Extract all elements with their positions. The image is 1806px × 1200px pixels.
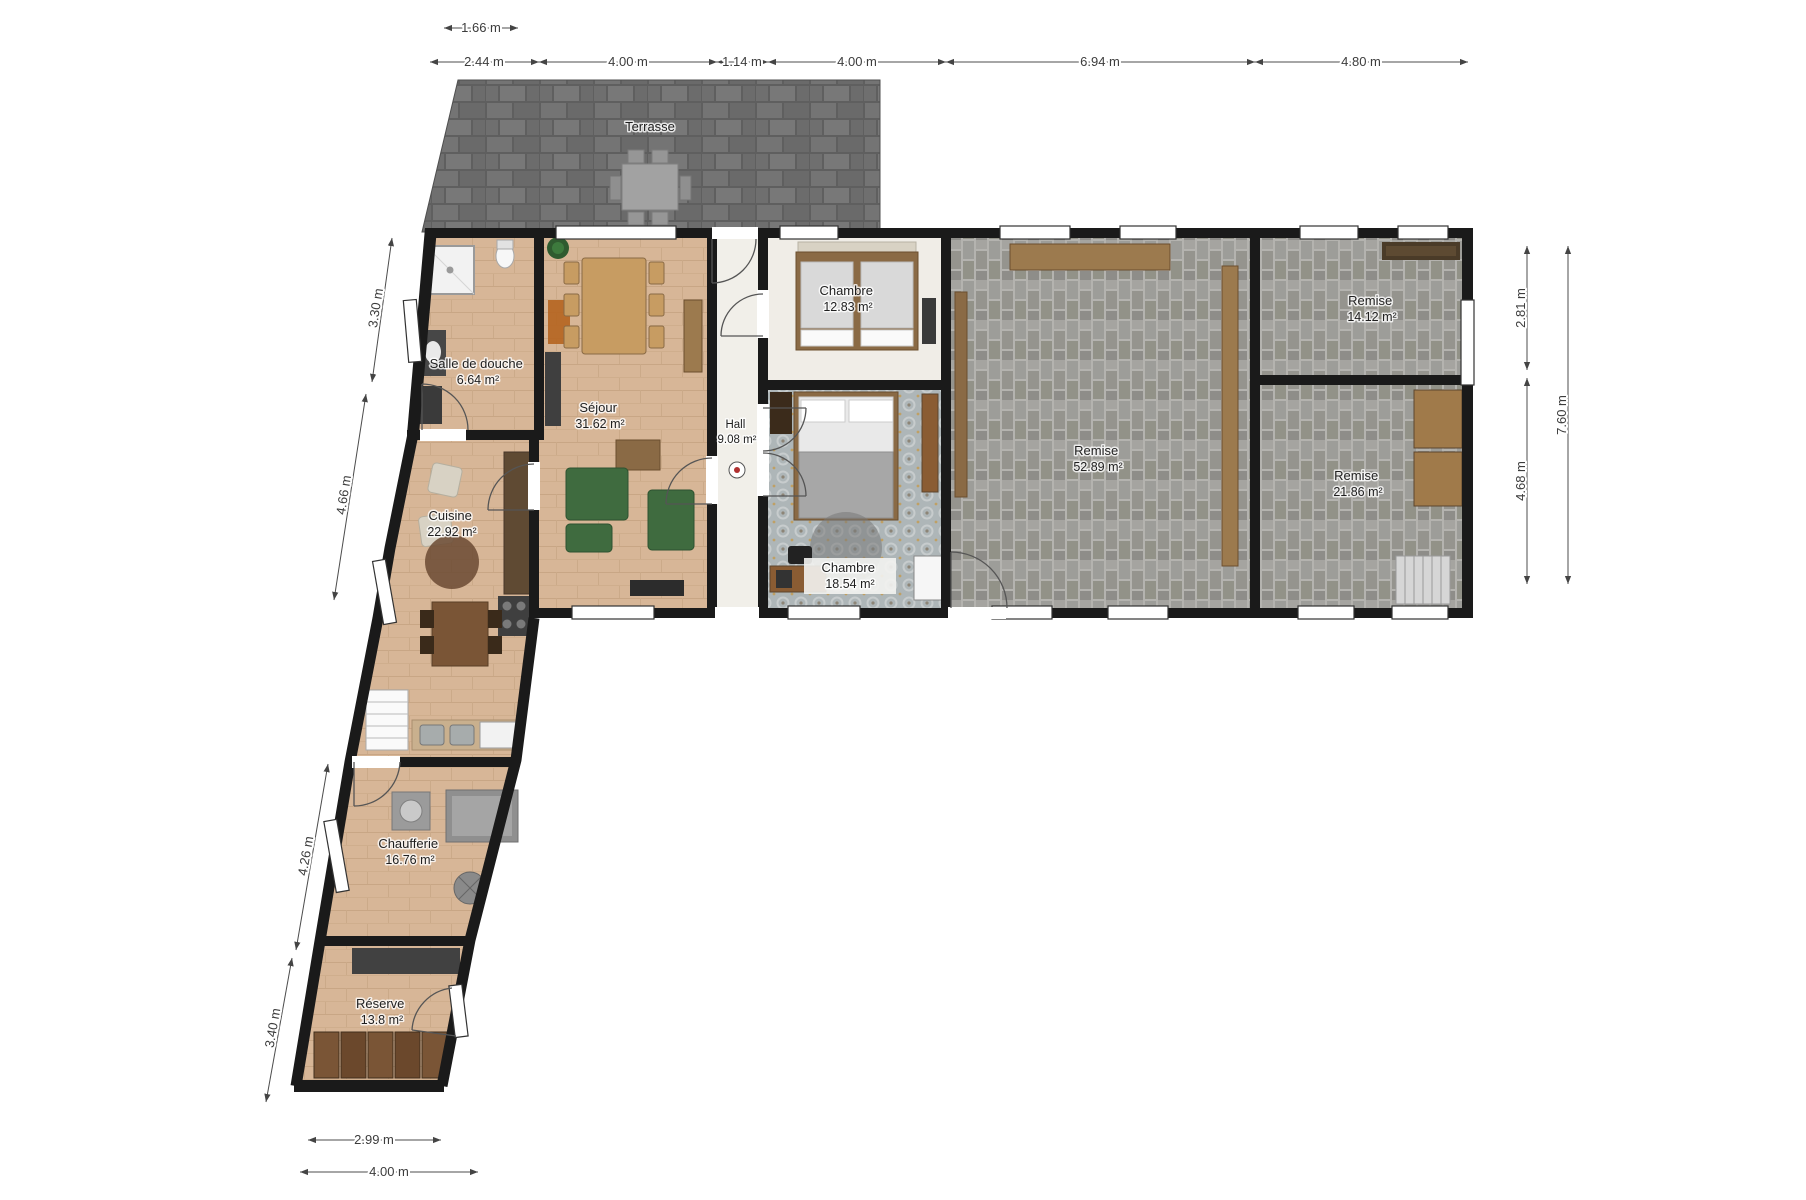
room-name: Cuisine [429,508,472,523]
reserve-shelving [314,1032,447,1078]
dim-right-2: 4.68 m [1513,461,1528,501]
dim-top-1: 2.44 m [464,54,504,69]
room-area: 18.54 m² [825,577,874,591]
dim-left-2: 4.66 m [333,474,354,516]
room-area: 16.76 m² [385,853,434,867]
hall-sensor-icon [729,462,745,478]
room-name: Hall [725,419,745,431]
dim-top-4: 4.00 m [837,54,877,69]
dim-top-3: 1.14 m [722,54,762,69]
room-name: Salle de douche [430,356,523,371]
dim-right-3: 7.60 m [1554,395,1569,435]
room-area: 9.08 m² [718,434,757,446]
room-name: Chaufferie [378,836,438,851]
dim-left-1: 3.30 m [365,287,386,329]
remise-small-shelf [1382,242,1460,260]
dim-top-2: 4.00 m [608,54,648,69]
room-area: 31.62 m² [575,417,624,431]
room-name: Séjour [579,400,617,415]
room-name: Remise [1074,443,1118,458]
room-name: Chambre [819,283,872,298]
cuisine-stairs [366,690,408,750]
room-name: Remise [1334,468,1378,483]
dim-top-upper: 1.66 m [461,20,501,35]
room-label-terrasse: Terrasse [625,119,675,134]
dim-top-6: 4.80 m [1341,54,1381,69]
floorplan-drawing: Terrasse Salle de douche 6.64 m² Séjour … [0,0,1806,1200]
room-area: 22.92 m² [427,525,476,539]
dim-left-3: 4.26 m [295,835,317,877]
remise-stairs [1396,556,1450,604]
room-area: 14.12 m² [1347,310,1396,324]
room-name: Chambre [821,560,874,575]
room-remise-large-floor [946,234,1255,612]
room-area: 6.64 m² [457,373,499,387]
dim-right-1: 2.81 m [1513,288,1528,328]
floorplan-page: Terrasse Salle de douche 6.64 m² Séjour … [0,0,1806,1200]
room-area: 21.86 m² [1333,485,1382,499]
dim-bottom-1: 2.99 m [354,1132,394,1147]
room-area: 13.8 m² [361,1013,403,1027]
room-name: Réserve [356,996,404,1011]
dim-left-4: 3.40 m [262,1007,284,1049]
room-area: 12.83 m² [823,300,872,314]
room-name: Remise [1348,293,1392,308]
dim-bottom-2: 4.00 m [369,1164,409,1179]
room-area: 52.89 m² [1073,460,1122,474]
dim-top-5: 6.94 m [1080,54,1120,69]
